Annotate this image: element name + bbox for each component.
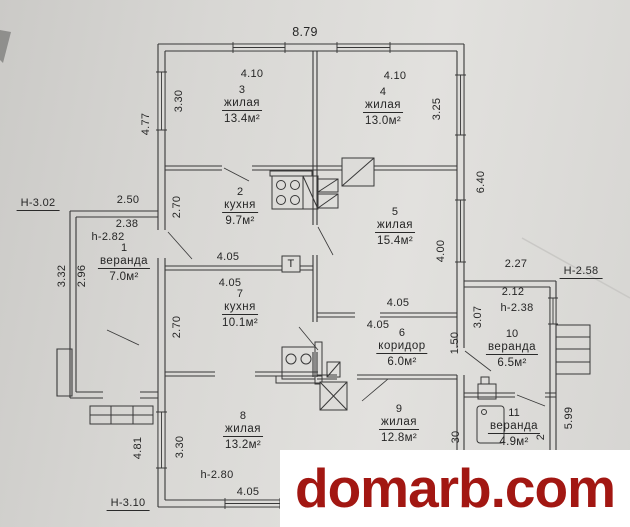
height-mark: Н-3.02 bbox=[17, 197, 60, 211]
dim-label: 3.30 bbox=[173, 90, 185, 113]
dim-label: 4.00 bbox=[435, 240, 447, 263]
dim-label: 4.05 bbox=[219, 277, 242, 289]
dim-label: 2.27 bbox=[505, 258, 528, 270]
room-name: жилая bbox=[222, 96, 262, 111]
room-label-8: 8жилая13.2м² bbox=[223, 410, 263, 453]
room-area: 13.2м² bbox=[223, 437, 263, 453]
height-mark: h-2.82 bbox=[92, 231, 125, 243]
dim-label: 4.05 bbox=[367, 319, 390, 331]
room-number: 11 bbox=[488, 407, 540, 419]
room-label-2: 2кухня9.7м² bbox=[222, 186, 258, 229]
room-label-9: 9жилая12.8м² bbox=[379, 403, 419, 446]
dim-label: 30 bbox=[450, 431, 462, 444]
dim-label: 2 bbox=[535, 434, 547, 440]
dim-label: 6.40 bbox=[475, 171, 487, 194]
dim-label: 2.50 bbox=[117, 194, 140, 206]
dim-label: 4.05 bbox=[237, 486, 260, 498]
room-area: 6.5м² bbox=[486, 355, 538, 371]
room-area: 10.1м² bbox=[222, 315, 258, 331]
dim-label: 4.05 bbox=[217, 251, 240, 263]
room-area: 6.0м² bbox=[376, 354, 427, 370]
room-label-4: 4жилая13.0м² bbox=[363, 86, 403, 129]
room-number: 9 bbox=[379, 403, 419, 415]
room-number: 1 bbox=[98, 242, 150, 254]
dim-label: 2.38 bbox=[116, 218, 139, 230]
dim-label: 4.77 bbox=[140, 113, 152, 136]
room-name: жилая bbox=[363, 98, 403, 113]
room-name: веранда bbox=[488, 419, 540, 434]
room-number: 2 bbox=[222, 186, 258, 198]
plan-labels: 1веранда7.0м²2кухня9.7м²3жилая13.4м²4жил… bbox=[0, 0, 630, 527]
room-number: 3 bbox=[222, 84, 262, 96]
watermark-banner: domarb.com bbox=[280, 450, 630, 527]
dim-label: 1.50 bbox=[449, 332, 461, 355]
dim-label: 2.70 bbox=[171, 316, 183, 339]
dim-label: 2.96 bbox=[76, 265, 88, 288]
room-name: жилая bbox=[223, 422, 263, 437]
room-label-3: 3жилая13.4м² bbox=[222, 84, 262, 127]
room-number: 7 bbox=[222, 288, 258, 300]
room-number: 4 bbox=[363, 86, 403, 98]
room-label-7: 7кухня10.1м² bbox=[222, 288, 258, 331]
room-area: 4.9м² bbox=[488, 434, 540, 450]
room-number: 5 bbox=[375, 206, 415, 218]
room-number: 10 bbox=[486, 328, 538, 340]
room-label-5: 5жилая15.4м² bbox=[375, 206, 415, 249]
room-name: веранда bbox=[486, 340, 538, 355]
room-label-6: 6коридор6.0м² bbox=[376, 327, 427, 370]
room-area: 9.7м² bbox=[222, 213, 258, 229]
watermark-text: domarb.com bbox=[295, 461, 615, 516]
room-area: 13.4м² bbox=[222, 111, 262, 127]
boiler-label: Т bbox=[287, 258, 294, 270]
dim-label: 3.30 bbox=[174, 436, 186, 459]
room-area: 15.4м² bbox=[375, 233, 415, 249]
room-area: 13.0м² bbox=[363, 113, 403, 129]
dim-label: 4.10 bbox=[241, 68, 264, 80]
dim-label: 4.05 bbox=[387, 297, 410, 309]
height-mark: h-2.80 bbox=[201, 469, 234, 481]
dim-label: 3.25 bbox=[431, 98, 443, 121]
room-name: веранда bbox=[98, 254, 150, 269]
height-mark: Н-2.58 bbox=[560, 265, 603, 279]
room-name: жилая bbox=[375, 218, 415, 233]
room-label-1: 1веранда7.0м² bbox=[98, 242, 150, 285]
height-mark: h-2.38 bbox=[501, 302, 534, 314]
room-name: кухня bbox=[222, 198, 258, 213]
dim-label: 4.81 bbox=[132, 437, 144, 460]
room-label-11: 11веранда4.9м² bbox=[488, 407, 540, 450]
room-name: жилая bbox=[379, 415, 419, 430]
dim-label: 2.12 bbox=[502, 286, 525, 298]
dim-label: 5.99 bbox=[563, 407, 575, 430]
dim-label: 3.07 bbox=[472, 306, 484, 329]
room-area: 7.0м² bbox=[98, 269, 150, 285]
dim-label: 2.70 bbox=[171, 196, 183, 219]
room-number: 8 bbox=[223, 410, 263, 422]
room-name: коридор bbox=[376, 339, 427, 354]
floor-plan-page: 1веранда7.0м²2кухня9.7м²3жилая13.4м²4жил… bbox=[0, 0, 630, 527]
dim-label: 3.32 bbox=[56, 265, 68, 288]
dim-label: 4.10 bbox=[384, 70, 407, 82]
height-mark: Н-3.10 bbox=[107, 497, 150, 511]
room-label-10: 10веранда6.5м² bbox=[486, 328, 538, 371]
room-area: 12.8м² bbox=[379, 430, 419, 446]
dim-label: 8.79 bbox=[292, 25, 318, 39]
room-name: кухня bbox=[222, 300, 258, 315]
